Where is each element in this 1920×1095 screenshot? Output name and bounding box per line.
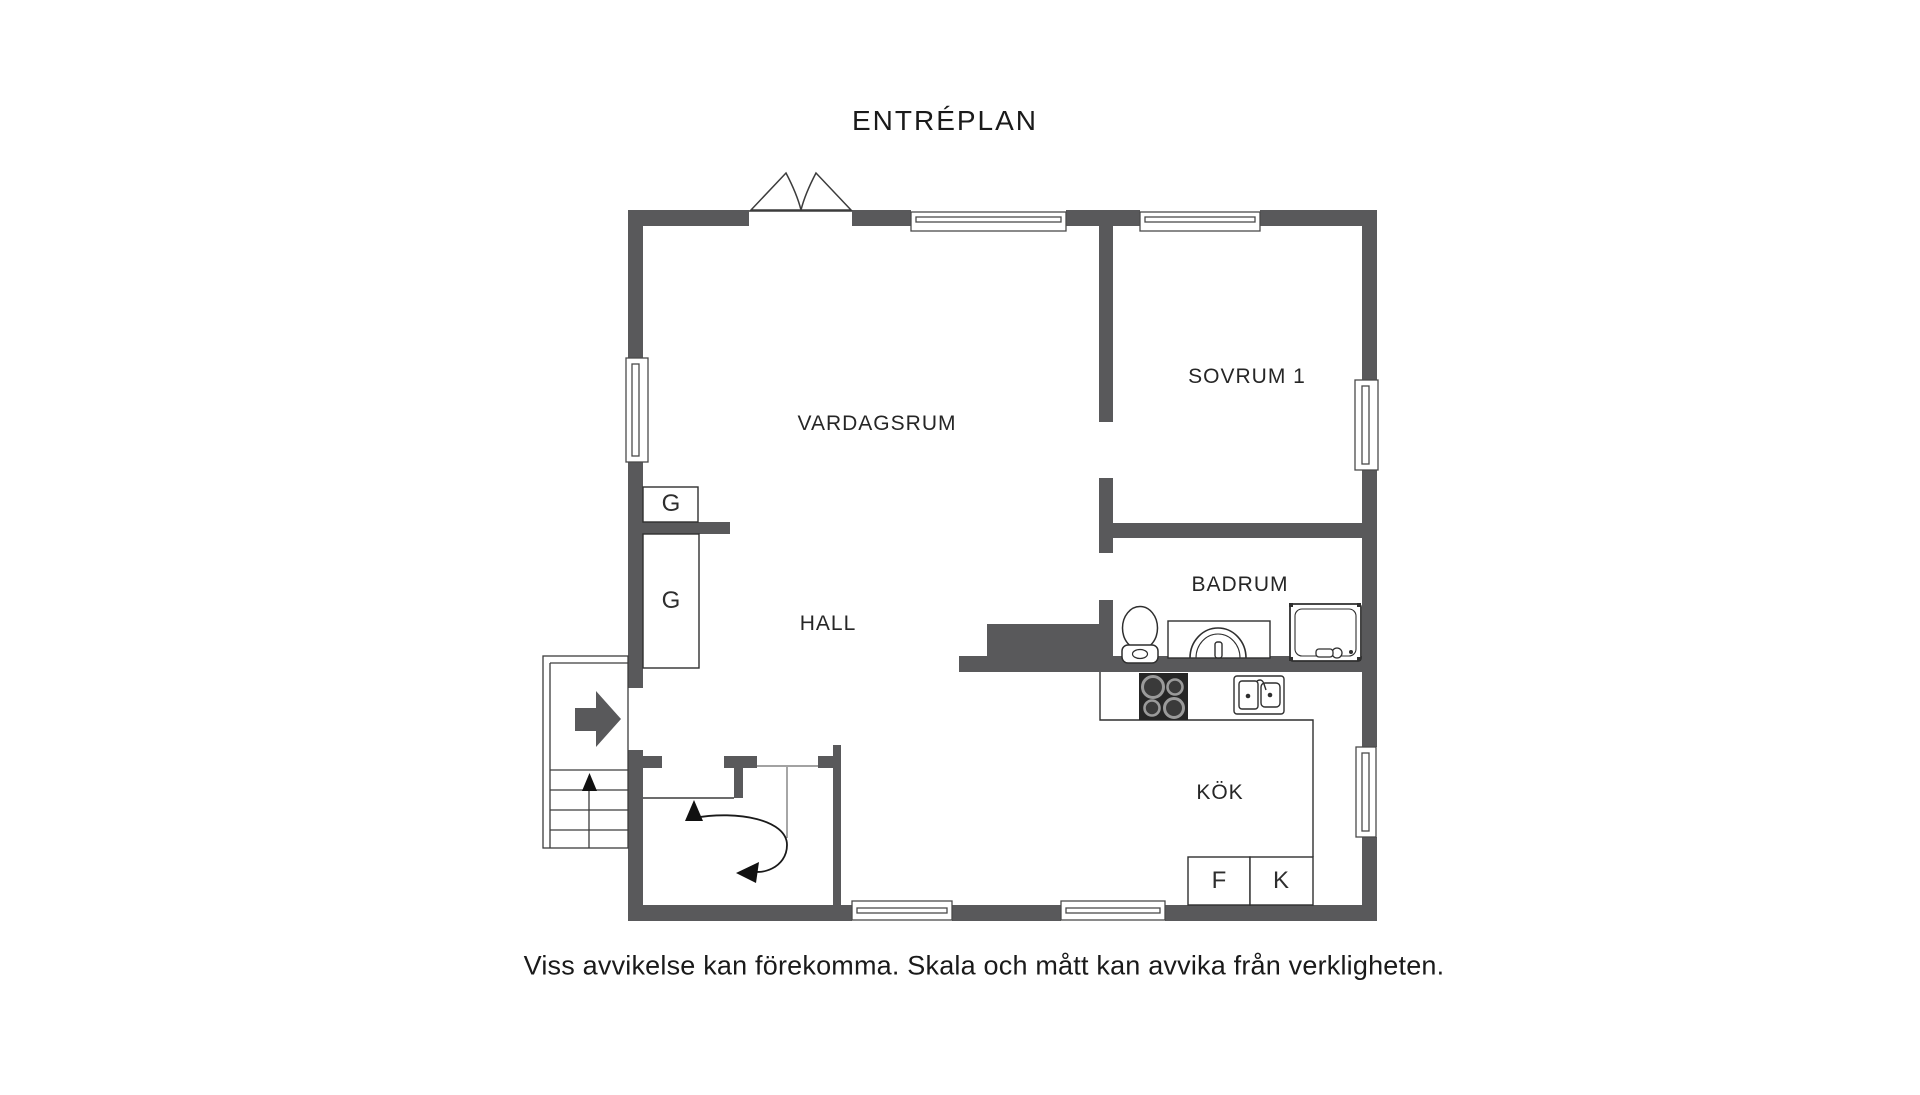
wall-right-2 [1362, 470, 1377, 747]
wall-top-3 [1066, 210, 1140, 226]
closets [643, 487, 699, 668]
stair-outer-box [543, 656, 628, 848]
window-icon-top-2 [1140, 212, 1260, 231]
shower-icon [1289, 603, 1361, 661]
wall-stairwell-right-stub [818, 756, 833, 768]
door-leaf-right [801, 173, 851, 210]
windows [626, 212, 1378, 920]
kitchen-sink-icon [1234, 676, 1284, 714]
entrance-double-door-icon [751, 173, 851, 210]
wall-left-2 [628, 462, 643, 688]
wall-top-1 [628, 210, 749, 226]
window-icon-sovrum [1355, 380, 1378, 470]
wall-left-1 [628, 210, 643, 358]
wall-stair-t-bar [724, 756, 757, 768]
bathroom-sink-icon [1168, 621, 1270, 658]
floor-plan-page: ENTRÉPLAN [0, 0, 1920, 1095]
fridge-box [1188, 857, 1250, 905]
wall-stair-stub-left [643, 756, 662, 768]
wall-right-1 [1362, 210, 1377, 380]
wall-top-2 [852, 210, 911, 226]
toilet-icon [1122, 607, 1158, 664]
wall-closet-divider [643, 522, 730, 534]
window-icon-bottom-1 [852, 901, 952, 920]
wall-sovrum-divider-mid [1099, 478, 1113, 553]
closet-g1-box [643, 487, 698, 522]
window-icon-top-1 [911, 212, 1066, 231]
wall-bottom-3 [1165, 905, 1377, 921]
window-icon-left [626, 358, 648, 462]
wall-right-3 [1362, 837, 1377, 921]
bathroom-fittings [1122, 603, 1361, 663]
staircase-icon [543, 656, 628, 848]
wall-bottom-2 [952, 905, 1061, 921]
chimney-block [987, 624, 1100, 656]
wall-stair-t-leg [734, 768, 743, 798]
closet-g2-box [643, 534, 699, 668]
wall-left-3 [628, 750, 643, 905]
wall-sovrum-divider-top [1099, 226, 1113, 422]
freezer-box [1250, 857, 1313, 905]
wall-bottom-1 [628, 905, 852, 921]
wall-sovrum-badrum [1113, 523, 1362, 538]
stair-curve-arrow-icon [685, 800, 787, 883]
window-icon-kok [1356, 747, 1376, 837]
door-leaf-left [751, 173, 801, 210]
wall-stairwell-right [833, 745, 841, 905]
interior-walls [643, 226, 1362, 905]
floor-plan-drawing [0, 0, 1920, 1095]
kitchen-fittings [1100, 672, 1313, 905]
exterior-walls [628, 210, 1377, 921]
window-icon-bottom-2 [1061, 901, 1165, 920]
stove-icon [1139, 673, 1188, 720]
wall-top-4 [1260, 210, 1377, 226]
